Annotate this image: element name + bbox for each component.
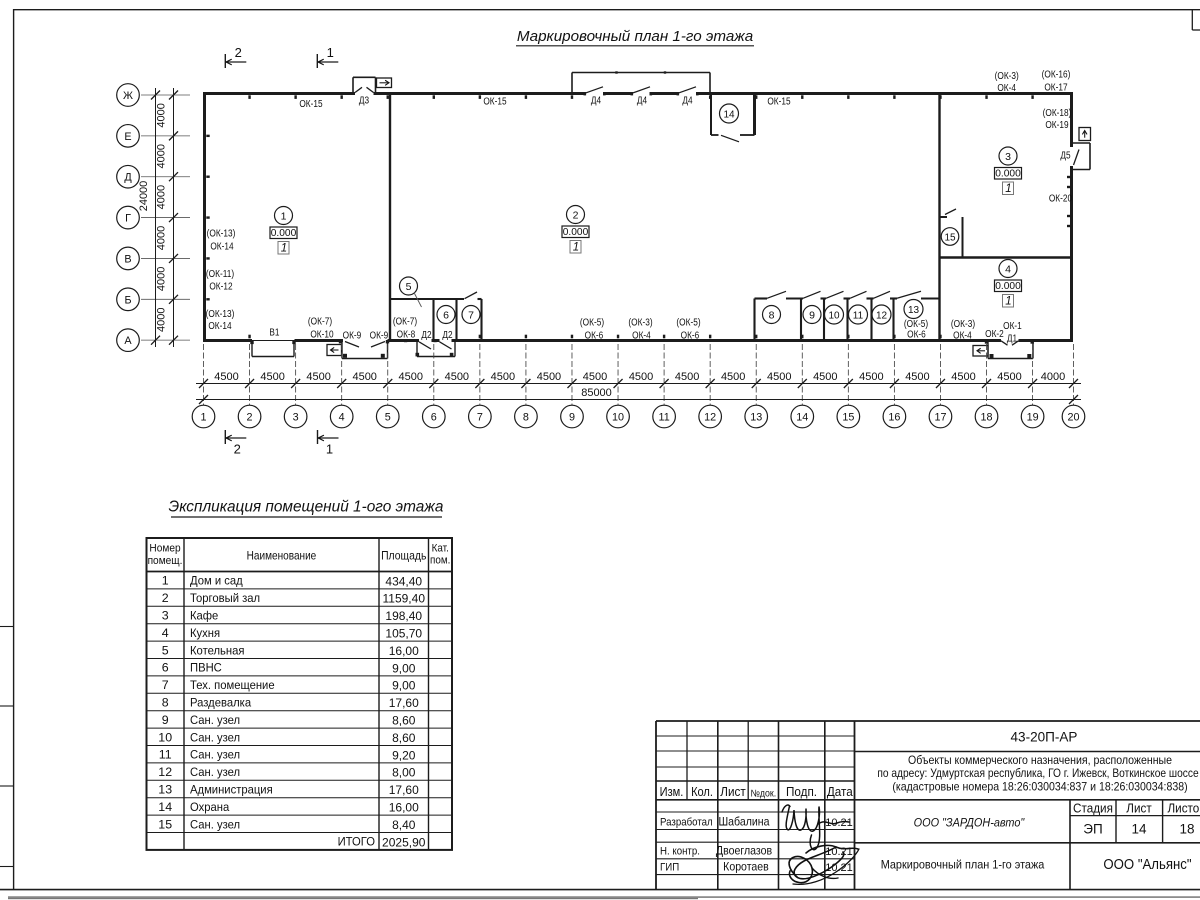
svg-text:0.000: 0.000: [563, 227, 589, 238]
svg-text:Д4: Д4: [591, 96, 602, 107]
svg-text:4500: 4500: [859, 371, 883, 383]
svg-text:9,00: 9,00: [392, 679, 416, 693]
svg-text:4: 4: [162, 626, 169, 640]
svg-text:11: 11: [658, 412, 669, 424]
svg-text:помещ.: помещ.: [148, 555, 183, 567]
svg-text:12: 12: [876, 310, 888, 321]
svg-text:В: В: [124, 253, 131, 265]
svg-text:Кат.: Кат.: [432, 543, 449, 555]
svg-text:16,00: 16,00: [389, 644, 419, 658]
svg-text:Раздевалка: Раздевалка: [190, 696, 251, 710]
svg-text:4500: 4500: [214, 371, 238, 383]
svg-text:(ОК-3): (ОК-3): [951, 319, 975, 330]
svg-text:8: 8: [162, 696, 169, 710]
svg-text:ОК-15: ОК-15: [299, 99, 323, 110]
svg-text:4500: 4500: [813, 371, 837, 383]
svg-text:(ОК-5): (ОК-5): [580, 318, 604, 329]
svg-text:ОК-20: ОК-20: [1049, 194, 1073, 205]
svg-text:Д: Д: [124, 172, 132, 184]
svg-text:4500: 4500: [306, 371, 330, 383]
svg-text:Сан. узел: Сан. узел: [190, 730, 240, 744]
svg-text:ЭП: ЭП: [1083, 822, 1102, 837]
svg-text:15: 15: [158, 817, 172, 831]
svg-text:Д3: Д3: [359, 96, 370, 107]
svg-text:105,70: 105,70: [385, 627, 422, 641]
svg-text:(ОК-3): (ОК-3): [995, 71, 1019, 82]
svg-text:5: 5: [385, 412, 391, 424]
svg-text:ГИП: ГИП: [660, 861, 679, 873]
svg-text:(ОК-7): (ОК-7): [393, 317, 417, 328]
svg-text:Г: Г: [125, 213, 131, 225]
svg-text:2: 2: [247, 412, 253, 424]
svg-text:20: 20: [1067, 412, 1079, 424]
svg-text:9: 9: [569, 412, 575, 424]
svg-text:4000: 4000: [156, 103, 168, 127]
svg-text:1: 1: [573, 242, 579, 254]
svg-text:Сан. узел: Сан. узел: [190, 748, 240, 762]
svg-text:18: 18: [981, 412, 993, 424]
svg-text:Торговый зал: Торговый зал: [190, 591, 260, 605]
svg-text:4500: 4500: [352, 371, 376, 383]
svg-text:8,60: 8,60: [392, 714, 416, 728]
svg-text:№док.: №док.: [750, 789, 776, 800]
svg-text:4500: 4500: [951, 371, 975, 383]
svg-text:17,60: 17,60: [389, 696, 419, 710]
svg-text:9,00: 9,00: [392, 661, 416, 675]
svg-text:0.000: 0.000: [995, 169, 1021, 180]
svg-text:6: 6: [443, 309, 449, 321]
svg-text:12: 12: [704, 412, 716, 424]
svg-text:2: 2: [573, 209, 579, 221]
svg-text:ОК-9: ОК-9: [343, 331, 362, 342]
svg-text:4000: 4000: [156, 185, 168, 209]
svg-text:13: 13: [750, 412, 762, 424]
svg-text:Кафе: Кафе: [190, 609, 218, 623]
svg-text:(ОК-13): (ОК-13): [207, 229, 236, 240]
svg-text:9: 9: [809, 309, 815, 321]
svg-text:6: 6: [162, 661, 169, 675]
svg-text:85000: 85000: [581, 387, 612, 399]
svg-text:16,00: 16,00: [389, 801, 419, 815]
svg-text:Площадь: Площадь: [381, 549, 426, 563]
svg-text:6: 6: [431, 412, 437, 424]
svg-text:пом.: пом.: [430, 555, 450, 567]
svg-text:3: 3: [1005, 151, 1011, 163]
svg-text:15: 15: [944, 232, 956, 243]
svg-text:Е: Е: [124, 131, 131, 143]
svg-text:8,60: 8,60: [392, 731, 416, 745]
svg-text:7: 7: [477, 412, 483, 424]
svg-text:(ОК-5): (ОК-5): [904, 319, 928, 330]
svg-text:2: 2: [162, 591, 169, 605]
svg-text:ОК-4: ОК-4: [632, 331, 651, 342]
svg-text:(ОК-11): (ОК-11): [206, 269, 234, 280]
svg-text:7: 7: [162, 678, 169, 692]
svg-text:ОК-9: ОК-9: [370, 331, 389, 342]
svg-text:10: 10: [828, 310, 840, 321]
svg-text:Д5: Д5: [1060, 151, 1071, 162]
svg-text:Б: Б: [124, 294, 131, 306]
svg-text:1: 1: [200, 412, 206, 424]
svg-text:1: 1: [281, 210, 287, 222]
svg-text:ПВНС: ПВНС: [190, 661, 222, 675]
svg-text:5: 5: [406, 281, 412, 293]
svg-text:Д4: Д4: [637, 96, 648, 107]
svg-text:Объекты коммерческого назначен: Объекты коммерческого назначения, распол…: [908, 753, 1172, 767]
svg-text:(ОК-5): (ОК-5): [676, 318, 700, 329]
svg-text:11: 11: [159, 748, 172, 762]
svg-text:ООО "Альянс": ООО "Альянс": [1103, 857, 1191, 873]
svg-text:4000: 4000: [1041, 371, 1065, 383]
svg-text:(кадастровые номера 18:26:0300: (кадастровые номера 18:26:030034:837 и 1…: [892, 779, 1187, 793]
svg-text:ОК-4: ОК-4: [953, 331, 972, 342]
svg-text:Администрация: Администрация: [190, 783, 273, 797]
svg-text:Экспликация помещений 1-ого эт: Экспликация помещений 1-ого этажа: [169, 499, 444, 516]
svg-text:2025,90: 2025,90: [382, 835, 426, 849]
svg-text:ОК-15: ОК-15: [767, 97, 791, 108]
svg-text:4500: 4500: [399, 371, 423, 383]
svg-text:4: 4: [339, 412, 345, 424]
svg-text:Лист: Лист: [720, 784, 745, 799]
svg-text:(ОК-7): (ОК-7): [308, 317, 332, 328]
svg-text:ОК-10: ОК-10: [310, 330, 334, 341]
svg-text:А: А: [124, 335, 132, 347]
svg-text:12: 12: [158, 765, 172, 779]
svg-text:ОК-14: ОК-14: [208, 321, 232, 332]
svg-text:11: 11: [853, 310, 864, 321]
svg-text:ОК-12: ОК-12: [209, 282, 232, 293]
svg-text:1: 1: [281, 243, 287, 255]
svg-text:(ОК-16): (ОК-16): [1042, 70, 1071, 81]
svg-text:4000: 4000: [156, 307, 168, 331]
svg-text:Лист: Лист: [1126, 800, 1151, 815]
svg-text:ОК-19: ОК-19: [1045, 120, 1068, 131]
svg-text:1159,40: 1159,40: [383, 592, 426, 606]
svg-text:1: 1: [162, 574, 169, 588]
svg-text:Наименование: Наименование: [247, 549, 317, 563]
svg-text:4000: 4000: [156, 144, 168, 168]
svg-text:4500: 4500: [491, 371, 515, 383]
svg-text:Шабалина: Шабалина: [718, 815, 769, 829]
svg-text:16: 16: [888, 412, 900, 424]
svg-text:(ОК-18): (ОК-18): [1043, 108, 1072, 119]
svg-text:Маркировочный план 1-го этажа: Маркировочный план 1-го этажа: [517, 28, 753, 45]
svg-text:Сан. узел: Сан. узел: [190, 765, 240, 779]
svg-text:(ОК-13): (ОК-13): [206, 309, 235, 320]
svg-text:Коротаев: Коротаев: [723, 860, 769, 874]
svg-text:19: 19: [1027, 412, 1039, 424]
svg-text:ОК-17: ОК-17: [1044, 83, 1067, 94]
svg-text:198,40: 198,40: [385, 609, 422, 623]
svg-text:14: 14: [1131, 822, 1147, 837]
svg-text:4500: 4500: [675, 371, 699, 383]
svg-text:4500: 4500: [445, 371, 469, 383]
svg-text:9: 9: [162, 713, 169, 727]
svg-text:по адресу: Удмуртская республи: по адресу: Удмуртская республика, ГО г. …: [877, 766, 1199, 780]
svg-text:ОК-14: ОК-14: [210, 242, 234, 253]
svg-text:4500: 4500: [583, 371, 607, 383]
svg-text:Сан. узел: Сан. узел: [190, 817, 240, 831]
svg-text:17: 17: [934, 412, 946, 424]
svg-text:3: 3: [293, 412, 299, 424]
svg-text:0.000: 0.000: [995, 281, 1021, 292]
svg-text:1: 1: [327, 45, 334, 60]
svg-text:Д4: Д4: [682, 96, 693, 107]
svg-text:(ОК-3): (ОК-3): [628, 318, 652, 329]
svg-text:Кол.: Кол.: [691, 784, 713, 799]
svg-text:Котельная: Котельная: [190, 643, 245, 657]
svg-text:ОК-1: ОК-1: [1003, 321, 1022, 332]
svg-text:Дом и сад: Дом и сад: [190, 574, 243, 588]
svg-text:4500: 4500: [537, 371, 561, 383]
svg-text:8,40: 8,40: [392, 818, 416, 832]
svg-text:Сан. узел: Сан. узел: [190, 713, 240, 727]
svg-text:8: 8: [523, 412, 529, 424]
svg-text:13: 13: [908, 305, 920, 316]
svg-text:4000: 4000: [156, 267, 168, 291]
svg-text:43-20П-АР: 43-20П-АР: [1011, 730, 1078, 746]
svg-text:Ж: Ж: [123, 90, 133, 102]
svg-text:15: 15: [842, 412, 854, 424]
svg-text:434,40: 434,40: [385, 574, 422, 588]
svg-text:Дата: Дата: [827, 784, 854, 799]
svg-text:Маркировочный план 1-го этажа: Маркировочный план 1-го этажа: [881, 857, 1045, 871]
svg-text:14: 14: [723, 109, 735, 120]
svg-text:ОК-6: ОК-6: [681, 331, 700, 342]
svg-text:24000: 24000: [138, 181, 150, 212]
svg-text:7: 7: [468, 309, 474, 321]
svg-text:4500: 4500: [629, 371, 653, 383]
svg-text:18: 18: [1179, 822, 1194, 837]
svg-text:8: 8: [769, 309, 775, 321]
svg-text:9,20: 9,20: [392, 748, 416, 762]
svg-text:4500: 4500: [260, 371, 284, 383]
svg-text:Подп.: Подп.: [786, 784, 817, 799]
svg-text:17,60: 17,60: [389, 783, 419, 797]
svg-text:10: 10: [158, 730, 172, 744]
svg-text:ОК-15: ОК-15: [483, 97, 507, 108]
svg-text:14: 14: [158, 800, 172, 814]
svg-text:Изм.: Изм.: [660, 784, 684, 799]
svg-text:4000: 4000: [156, 226, 168, 250]
svg-text:Стадия: Стадия: [1073, 800, 1113, 815]
svg-text:ИТОГО: ИТОГО: [338, 835, 376, 849]
svg-text:2: 2: [235, 45, 242, 60]
svg-text:1: 1: [1005, 296, 1011, 308]
svg-text:Листов: Листов: [1167, 800, 1200, 815]
svg-text:1: 1: [1005, 183, 1011, 195]
svg-text:В1: В1: [269, 328, 279, 339]
svg-text:1: 1: [326, 442, 333, 457]
svg-text:Н. контр.: Н. контр.: [660, 845, 700, 857]
svg-text:0.000: 0.000: [271, 228, 297, 239]
svg-text:Д2: Д2: [442, 330, 452, 341]
svg-text:Двоеглазов: Двоеглазов: [716, 844, 772, 858]
svg-text:ОК-2: ОК-2: [985, 329, 1004, 340]
svg-text:Разработал: Разработал: [660, 817, 713, 829]
svg-text:13: 13: [158, 783, 172, 797]
svg-text:5: 5: [162, 643, 169, 657]
svg-text:ОК-8: ОК-8: [397, 330, 416, 341]
svg-text:ОК-6: ОК-6: [907, 330, 926, 341]
svg-text:ООО "ЗАРДОН-авто": ООО "ЗАРДОН-авто": [914, 815, 1025, 829]
svg-text:ОК-4: ОК-4: [997, 83, 1016, 94]
svg-text:3: 3: [162, 609, 169, 623]
svg-text:8,00: 8,00: [392, 766, 416, 780]
svg-text:4500: 4500: [721, 371, 745, 383]
svg-text:4500: 4500: [997, 371, 1021, 383]
svg-text:10: 10: [612, 412, 624, 424]
svg-text:2: 2: [234, 442, 241, 457]
svg-text:14: 14: [796, 412, 808, 424]
svg-text:Номер: Номер: [149, 543, 180, 555]
svg-text:4500: 4500: [905, 371, 929, 383]
svg-text:Охрана: Охрана: [190, 800, 229, 814]
svg-text:4: 4: [1005, 263, 1011, 275]
svg-text:ОК-6: ОК-6: [585, 331, 604, 342]
svg-text:Д1: Д1: [1007, 334, 1017, 345]
svg-text:Кухня: Кухня: [190, 626, 220, 640]
svg-text:4500: 4500: [767, 371, 791, 383]
svg-text:Тех. помещение: Тех. помещение: [190, 678, 275, 692]
svg-text:Д2: Д2: [421, 330, 431, 341]
